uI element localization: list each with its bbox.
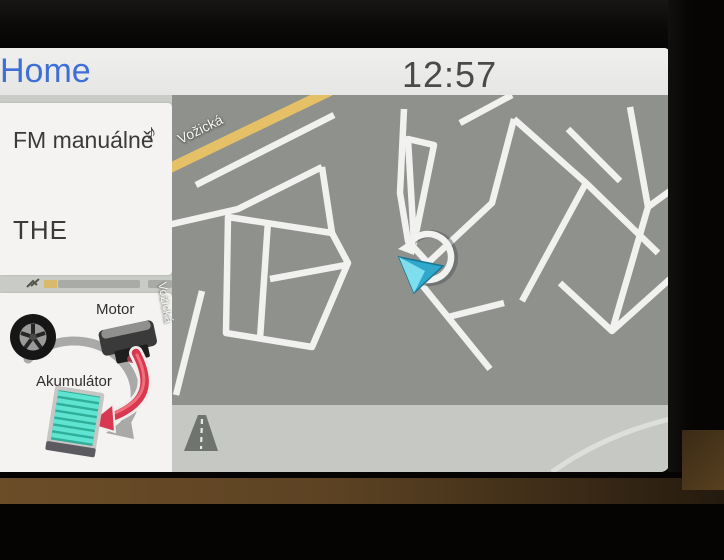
media-station-label: THE (13, 215, 68, 246)
energy-flow-widget[interactable]: Motor Akumulátor (0, 293, 172, 472)
dashboard-right-bezel (668, 0, 724, 478)
battery-label: Akumulátor (36, 373, 112, 390)
trim-corner (682, 430, 724, 490)
infotainment-screen: Home 12:57 FM manuálně ♪ THE (0, 48, 670, 472)
media-widget[interactable]: FM manuálně ♪ THE (0, 103, 172, 275)
wheel-icon (10, 314, 56, 360)
home-button[interactable]: Home (0, 52, 91, 91)
motor-icon (98, 319, 161, 369)
clock-display: 12:57 (402, 54, 497, 96)
navigation-map[interactable]: Vožická Vožická (172, 95, 670, 472)
mini-map-strip (0, 275, 172, 293)
map-canvas (172, 95, 670, 472)
dashboard-top-bezel (0, 0, 724, 48)
widget-panel: FM manuálně ♪ THE (0, 95, 172, 472)
dashboard-lower-trim (0, 472, 724, 560)
wood-trim-strip (0, 478, 724, 504)
media-source-label: FM manuálně (13, 127, 154, 154)
battery-icon (45, 385, 105, 457)
mini-junction-icon (26, 277, 42, 290)
motor-label: Motor (96, 301, 134, 318)
music-note-icon: ♪ (146, 121, 157, 145)
mini-road-segment (58, 280, 140, 288)
mini-road-yellow-segment (44, 280, 57, 288)
status-bar: Home 12:57 (0, 48, 670, 95)
map-light-zone (172, 405, 670, 472)
